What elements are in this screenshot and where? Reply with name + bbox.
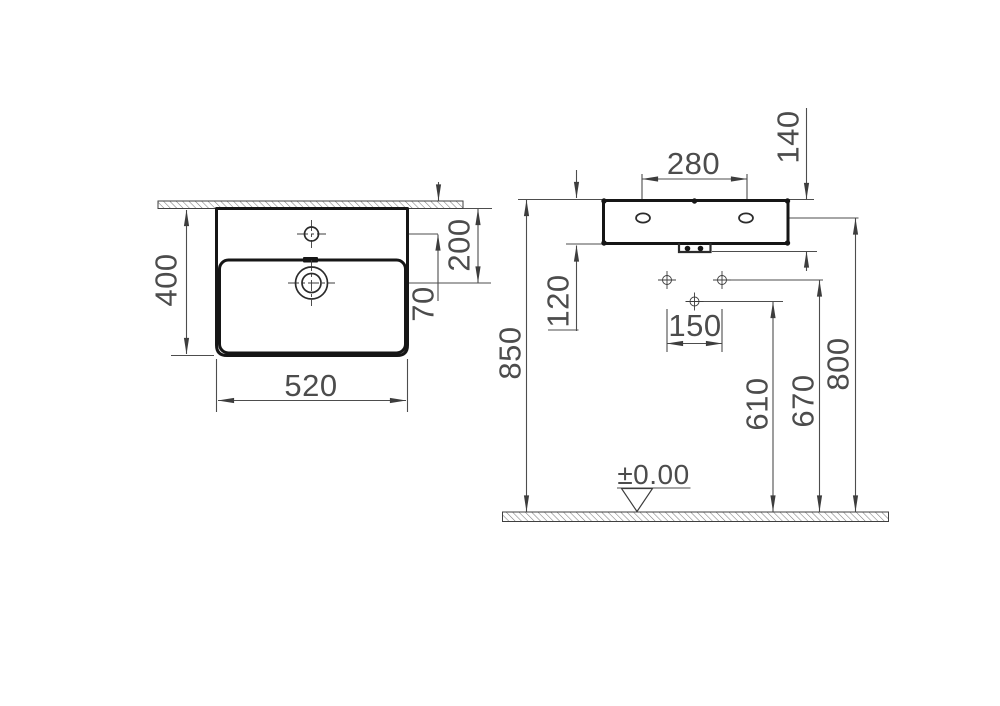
plan-view: 400 520 200 70 [149,182,493,412]
corner-dot-top-center [692,198,697,203]
dim-label-fixing-spacing: 150 [668,308,721,343]
floor-section [503,512,889,522]
dim-label-basin-depth: 400 [149,253,184,306]
dim-label-lower-hole-height: 610 [740,377,775,430]
corner-dot-bottom-left [601,240,606,245]
outlet-dot-right [698,246,704,252]
dim-label-basin-width: 520 [284,368,337,403]
dim-label-outlet-depth: 140 [771,110,806,163]
dim-label-hanger-spacing: 280 [667,146,720,181]
dim-label-fixing-hole-height: 670 [786,374,821,427]
corner-dot-top-left [601,198,606,203]
outlet-dot-left [685,246,691,252]
floor-datum-label: ±0.00 [617,459,689,490]
elevation-view: 280 140 120 850 150 610 670 800 ±0.00 [493,108,889,522]
dim-label-rim-height: 850 [493,326,528,379]
technical-drawing-sheet: 400 520 200 70 [0,0,1000,706]
corner-dot-top-right [785,198,790,203]
dim-label-hanger-hole-height: 800 [821,337,856,390]
datum-level-symbol [622,489,653,512]
drawing-canvas: 400 520 200 70 [0,0,1000,706]
overflow-notch [303,257,318,263]
corner-dot-bottom-right [785,240,790,245]
dim-label-tap-from-wall: 70 [406,286,441,321]
dim-label-underside: 120 [541,274,576,327]
basin-side-outline [604,201,789,244]
dim-label-drain-from-wall: 200 [442,218,477,271]
